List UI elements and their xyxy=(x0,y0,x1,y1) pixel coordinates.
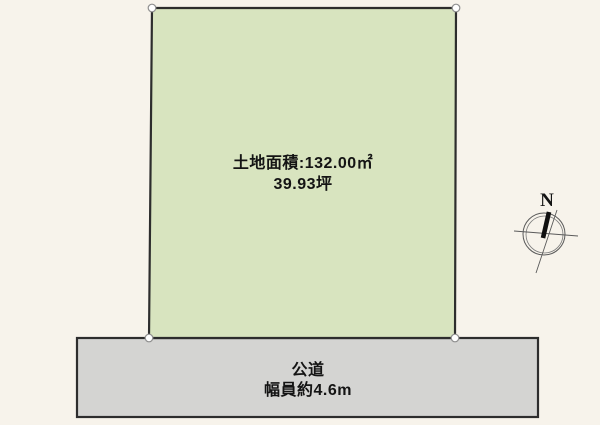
land-plot-diagram: 土地面積:132.00㎡ 39.93坪 公道 幅員約4.6m N xyxy=(0,0,600,425)
compass-north-label: N xyxy=(540,190,554,212)
corner-marker-top-left xyxy=(148,4,156,12)
corner-marker-bottom-right xyxy=(451,334,459,342)
road-width-label: 幅員約4.6m xyxy=(264,376,352,400)
corner-marker-top-right xyxy=(452,4,460,12)
land-area-tsubo-label: 39.93坪 xyxy=(273,170,332,194)
corner-marker-bottom-left xyxy=(145,334,153,342)
